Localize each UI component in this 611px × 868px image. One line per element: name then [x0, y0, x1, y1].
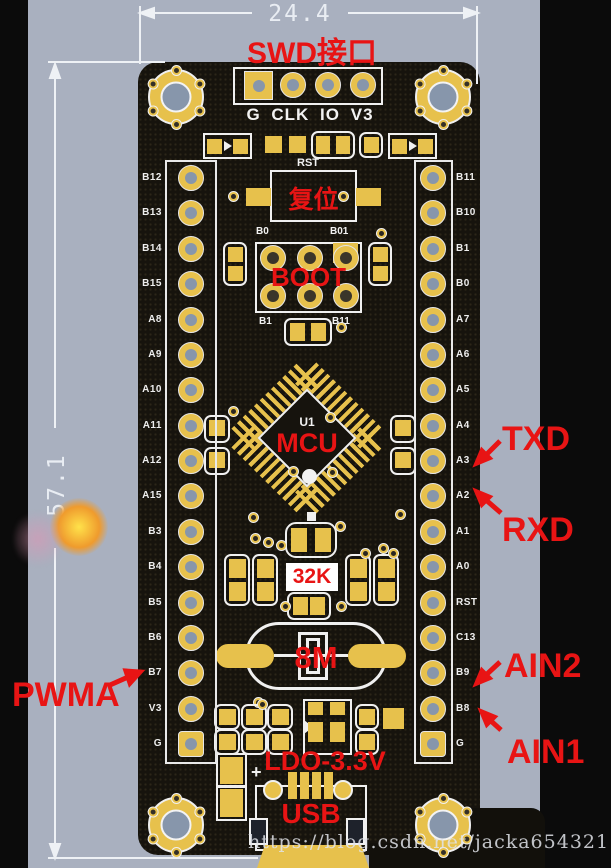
pin-pad [420, 413, 446, 439]
pin-label: B13 [132, 197, 162, 229]
pin-row-right-a0: A0 [420, 551, 504, 583]
crystal-32k-annotation: 32K [293, 565, 332, 589]
via [327, 467, 338, 478]
swd-pad-v3 [350, 72, 376, 98]
left-black-strip [0, 0, 28, 868]
usb-finger [288, 772, 297, 799]
pin-row-left-b14: B14 [132, 233, 216, 265]
pin-row-right-a1: A1 [420, 516, 504, 548]
pin-row-right-g: G [420, 728, 504, 760]
usb-finger [324, 772, 333, 799]
pin-label: B4 [132, 551, 162, 583]
swd-pad-clk [280, 72, 306, 98]
pin-row-right-a2: A2 [420, 480, 504, 512]
pin-label: A15 [132, 480, 162, 512]
hole [161, 82, 192, 113]
pin-label: B1 [456, 233, 502, 265]
boot-silkscreen-b01: B01 [330, 226, 348, 237]
via [280, 601, 291, 612]
pin-label: B5 [132, 587, 162, 619]
pin1-dot [302, 469, 317, 484]
capacitor-footprint [252, 554, 278, 606]
pin-label: B14 [132, 233, 162, 265]
pin-label: B8 [456, 693, 502, 725]
ain1-annotation: AIN1 [507, 733, 584, 772]
annotated-pcb-screenshot: G CLK IO V3 RST 复位 B0 B01 BOOT B1 B11 [0, 0, 611, 868]
capacitor-footprint [311, 131, 355, 159]
smd-pads-right-of-boot [368, 242, 392, 286]
usb-mount-pad [263, 780, 283, 800]
pin-row-right-b9: B9 [420, 657, 504, 689]
capacitor-footprint [284, 318, 332, 346]
smd-pad [330, 722, 345, 742]
capacitor-footprint [359, 132, 383, 158]
rxd-annotation: RXD [502, 511, 574, 550]
smd-pad [308, 722, 323, 742]
pin-row-right-b11: B11 [420, 162, 504, 194]
crystal-8m-pad-left [216, 644, 274, 668]
usb-annotation: USB [255, 798, 367, 830]
pin-label: C13 [456, 622, 502, 654]
right-pin-column: B11B10B1B0A7A6A5A4A3A2A1A0RSTC13B9B8G [420, 162, 504, 766]
dim-arrow-up [50, 64, 60, 78]
dim-arrow-left [140, 8, 154, 18]
diode-footprint-left [203, 133, 252, 159]
swd-header-silkscreen: G CLK IO V3 [240, 105, 380, 125]
pin-label: A4 [456, 410, 502, 442]
crystal-8m-pad-right [348, 644, 406, 668]
pin-label: B15 [132, 268, 162, 300]
pwma-annotation: PWMA [12, 676, 120, 715]
pin-pad [178, 660, 204, 686]
pin-label: B10 [456, 197, 502, 229]
pin-label: B9 [456, 657, 502, 689]
pin-row-right-a4: A4 [420, 410, 504, 442]
smd-footprint [355, 704, 379, 730]
via [395, 509, 406, 520]
pin-row-right-a6: A6 [420, 339, 504, 371]
via [288, 466, 299, 477]
pin-pad [178, 483, 204, 509]
pin-row-left-a15: A15 [132, 480, 216, 512]
pin-row-right-b0: B0 [420, 268, 504, 300]
via [250, 533, 261, 544]
pin-pad [420, 200, 446, 226]
pin-row-left-b15: B15 [132, 268, 216, 300]
boot-silkscreen-b1: B1 [259, 316, 272, 327]
pin-label: B6 [132, 622, 162, 654]
mounting-hole-top-left [148, 69, 204, 125]
mcu-overlay: U1 MCU [240, 371, 374, 505]
pin-label: B3 [132, 516, 162, 548]
pin-row-right-c13: C13 [420, 622, 504, 654]
pin-pad [178, 448, 204, 474]
pin-label: B11 [456, 162, 502, 194]
osc32k-footprint [285, 522, 337, 558]
pin-label: A12 [132, 445, 162, 477]
pin-label: B7 [132, 657, 162, 689]
pin-label: G [132, 728, 162, 760]
pin-pad [178, 271, 204, 297]
pin-label: A7 [456, 304, 502, 336]
usb-mount-pad [333, 780, 353, 800]
reset-annotation: 复位 [270, 180, 357, 216]
pin-pad [178, 377, 204, 403]
pin-pad [420, 377, 446, 403]
pin-label: A1 [456, 516, 502, 548]
via [325, 412, 336, 423]
pin-row-right-b10: B10 [420, 197, 504, 229]
swd-annotation: SWD接口 [247, 28, 377, 72]
diode-band [217, 785, 246, 788]
pin-pad [178, 519, 204, 545]
pin-pad [178, 342, 204, 368]
via [228, 191, 239, 202]
pin-row-right-a3: A3 [420, 445, 504, 477]
pin-row-left-b3: B3 [132, 516, 216, 548]
crystal-32k-body: 32K [286, 563, 338, 591]
via [336, 322, 347, 333]
pin-label: A5 [456, 374, 502, 406]
mcu-annotation: MCU [240, 428, 374, 459]
pin-row-left-b12: B12 [132, 162, 216, 194]
smd-pad-right-of-mcu [390, 415, 416, 443]
pin-pad [420, 307, 446, 333]
pin-label: V3 [132, 693, 162, 725]
pin-pad [420, 696, 446, 722]
pin-label: A10 [132, 374, 162, 406]
pin-label: A9 [132, 339, 162, 371]
dim-arrow-down [50, 844, 60, 858]
pin-label: A2 [456, 480, 502, 512]
pin-row-left-a9: A9 [132, 339, 216, 371]
pin-row-right-rst: RST [420, 587, 504, 619]
pin-row-left-b7: B7 [132, 657, 216, 689]
smd-pad [383, 708, 404, 729]
smd-pads-left-of-boot [223, 242, 247, 286]
usb-finger [300, 772, 309, 799]
pin-pad [420, 625, 446, 651]
capacitor-footprint [287, 592, 331, 620]
pin-pad [420, 519, 446, 545]
smd-pad [330, 702, 345, 715]
via [276, 540, 287, 551]
via [360, 548, 371, 559]
pin-pad [178, 696, 204, 722]
dim-arrow-right [464, 8, 478, 18]
pin-row-right-a7: A7 [420, 304, 504, 336]
pin-row-right-b8: B8 [420, 693, 504, 725]
via [336, 601, 347, 612]
pin-row-left-b13: B13 [132, 197, 216, 229]
pin-row-left-g: G [132, 728, 216, 760]
pin-label: A8 [132, 304, 162, 336]
pin-label: B12 [132, 162, 162, 194]
pin-pad [420, 554, 446, 580]
mounting-hole-top-right [415, 69, 471, 125]
smd-pad [308, 702, 323, 715]
pin-label: G [456, 728, 502, 760]
pin-row-right-a5: A5 [420, 374, 504, 406]
smd-footprint [214, 704, 240, 730]
pin-pad [178, 625, 204, 651]
crystal-8m-annotation: 8M [281, 640, 351, 676]
pin-pad [178, 307, 204, 333]
diode-footprint-right [388, 133, 437, 159]
pin-pad [178, 165, 204, 191]
smd-footprint [214, 729, 240, 755]
pin-pad [420, 271, 446, 297]
reset-pad-left [246, 188, 271, 206]
pin-pad [178, 590, 204, 616]
swd-pad-g [244, 71, 273, 100]
pin-pad [420, 660, 446, 686]
pin-label: A0 [456, 551, 502, 583]
width-dimension: 24.4 [255, 1, 345, 27]
via [257, 699, 268, 710]
pin-label: B0 [456, 268, 502, 300]
capacitor-footprint [345, 554, 371, 606]
pin-row-left-a10: A10 [132, 374, 216, 406]
pin-row-right-b1: B1 [420, 233, 504, 265]
pin-pad [420, 165, 446, 191]
left-pin-column: B12B13B14B15A8A9A10A11A12A15B3B4B5B6B7V3… [132, 162, 216, 766]
smd-pad [289, 136, 306, 153]
pin-pad [178, 413, 204, 439]
rst-silkscreen: RST [288, 157, 328, 169]
pin-row-left-b4: B4 [132, 551, 216, 583]
height-dimension: 57.1 [44, 440, 70, 530]
pin-row-left-a12: A12 [132, 445, 216, 477]
pin-pad [420, 448, 446, 474]
pin-row-left-b6: B6 [132, 622, 216, 654]
pin-row-left-a8: A8 [132, 304, 216, 336]
usb-finger [312, 772, 321, 799]
plus-silkscreen: + [251, 762, 262, 783]
smd-pad-right-of-mcu [390, 447, 416, 475]
smd-pad [265, 136, 282, 153]
mcu-refdes: U1 [240, 415, 374, 429]
pin-pad [178, 554, 204, 580]
pin-row-left-b5: B5 [132, 587, 216, 619]
via [228, 406, 239, 417]
diode-pad [220, 757, 243, 784]
mounting-hole-bottom-left [148, 797, 204, 853]
smd-footprint [267, 704, 293, 730]
boot-silkscreen-b0: B0 [256, 226, 269, 237]
via [248, 512, 259, 523]
pin-label: A6 [456, 339, 502, 371]
pin-pad [178, 731, 204, 757]
pin-row-left-a11: A11 [132, 410, 216, 442]
pin-pad [178, 236, 204, 262]
pin-pad [178, 200, 204, 226]
silk-square [307, 512, 316, 521]
pin-pad [420, 483, 446, 509]
diode-pad [220, 789, 243, 817]
pin-pad [420, 236, 446, 262]
via [335, 521, 346, 532]
boot-annotation: BOOT [255, 262, 362, 293]
pin-label: A3 [456, 445, 502, 477]
pin-label: RST [456, 587, 502, 619]
txd-annotation: TXD [502, 420, 570, 459]
pin-pad [420, 590, 446, 616]
pin-label: A11 [132, 410, 162, 442]
reset-pad-right [356, 188, 381, 206]
swd-pad-io [315, 72, 341, 98]
pin-row-left-v3: V3 [132, 693, 216, 725]
capacitor-footprint [224, 554, 250, 606]
capacitor-footprint [373, 554, 399, 606]
watermark: https://blog.csdn.net/jacka654321 [248, 831, 609, 853]
via [388, 548, 399, 559]
pin-pad [420, 731, 446, 757]
via [263, 537, 274, 548]
pin-pad [420, 342, 446, 368]
ain2-annotation: AIN2 [504, 647, 581, 686]
via [376, 228, 387, 239]
